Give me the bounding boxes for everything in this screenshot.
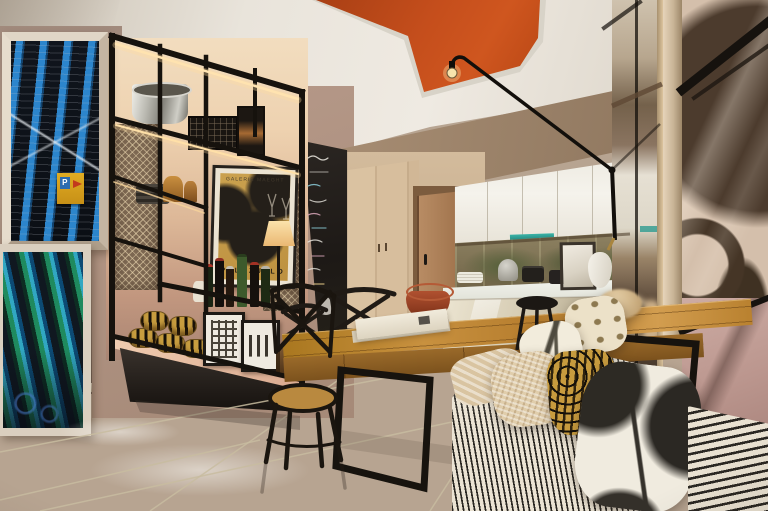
bar-lamp-stem [277,246,280,304]
woven-basket [140,311,169,331]
woven-basket [155,333,185,353]
mirror-teal-reflection [640,226,658,232]
kettle [498,259,518,281]
artwork-photo-pipes [11,41,99,241]
magazine-logo [418,316,430,325]
wine-bottle [215,258,224,307]
black-white-abstract-pillow [570,357,707,511]
wine-bottle [250,262,259,307]
floor-glare [60,418,180,446]
amber-jar [163,176,183,202]
print-figure-pattern [249,328,272,364]
woven-basket [128,328,158,348]
wine-bottle [205,264,213,307]
wardrobe-handle [378,244,380,252]
bar-lamp-base [271,302,285,306]
parking-sign: P [57,173,84,204]
lantern [237,106,265,156]
poster-gallery-text: GALERIE MAEGHT [220,176,290,184]
framed-print-figures [241,320,280,372]
wire-crate [188,116,238,150]
print-grid-pattern [211,320,237,358]
apartment-photo: GALERIE MAEGHT PALAZUELO P [0,0,768,511]
framed-print-grid [203,312,245,366]
wine-bottle [226,266,234,307]
mirror-frame-pillar [663,0,682,340]
plate-stack [457,272,483,283]
parking-letter: P [60,177,70,189]
abstract-artwork-right [682,0,768,340]
mesh-panel [114,124,158,290]
arrow-icon [73,180,82,188]
woven-basket [168,316,197,336]
wardrobe-handle [385,243,387,251]
bucket-rim [132,82,192,98]
wine-bottle [237,254,247,307]
door-handle [424,254,427,265]
floor-glare [90,444,310,496]
wine-bottle [261,266,270,307]
amber-jar [184,181,197,202]
white-jug [193,281,206,302]
black-pot [522,266,544,282]
artwork-glass-glare [682,0,768,340]
pompidou-artwork-upper: P [2,32,108,250]
terracotta-bowl-rim [406,283,454,301]
